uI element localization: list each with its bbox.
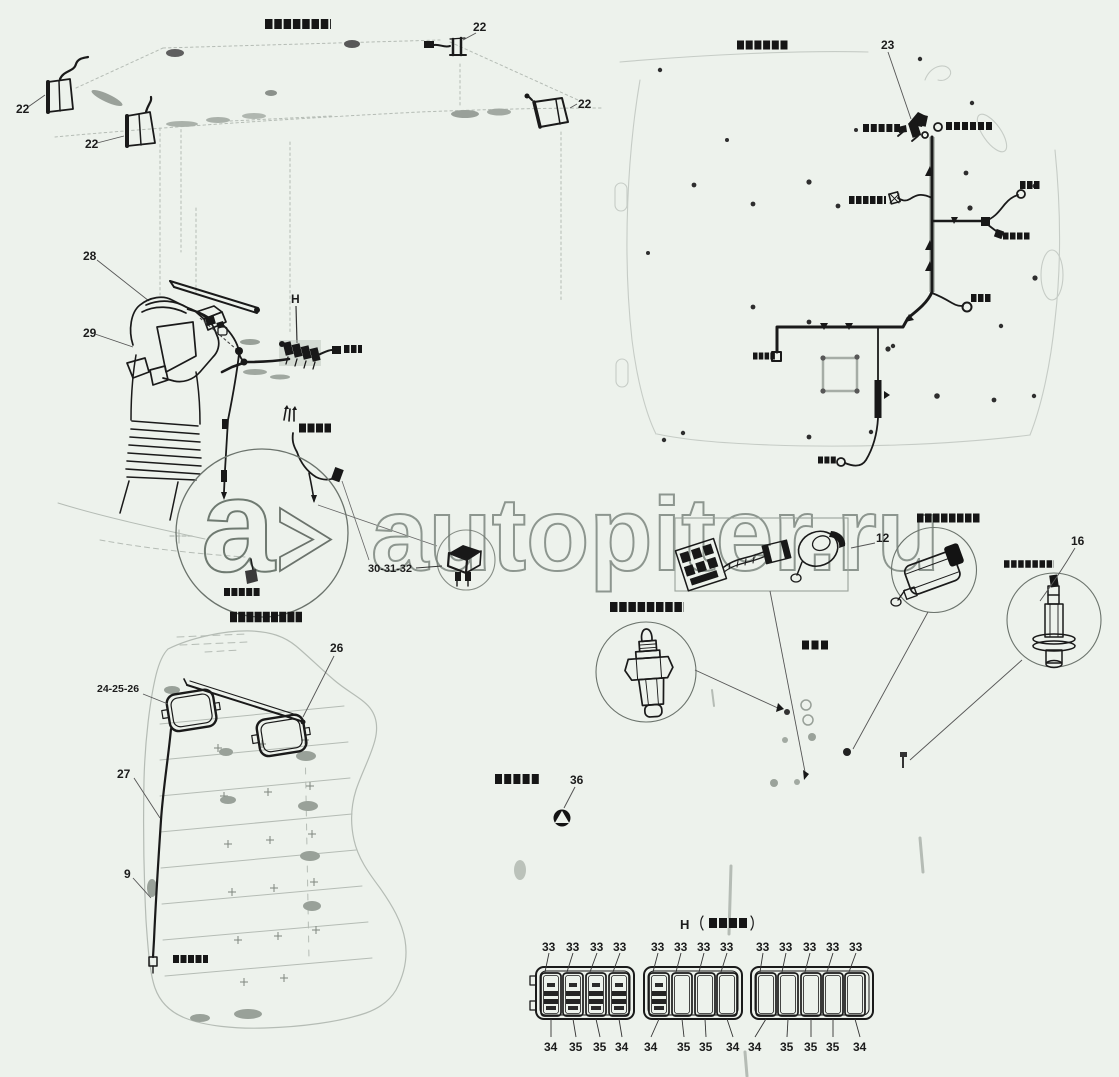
svg-text:24-25-26: 24-25-26 — [97, 683, 139, 695]
svg-text:33: 33 — [720, 940, 734, 954]
svg-text:34: 34 — [726, 1040, 740, 1054]
svg-text:33: 33 — [651, 940, 665, 954]
svg-text:34: 34 — [644, 1040, 658, 1054]
svg-text:35: 35 — [804, 1040, 818, 1054]
svg-text:23: 23 — [881, 38, 895, 52]
svg-text:36: 36 — [570, 773, 584, 787]
svg-text:34: 34 — [853, 1040, 867, 1054]
svg-text:22: 22 — [473, 20, 487, 34]
svg-text:33: 33 — [849, 940, 863, 954]
svg-text:33: 33 — [779, 940, 793, 954]
svg-text:33: 33 — [674, 940, 688, 954]
svg-text:33: 33 — [826, 940, 840, 954]
svg-text:33: 33 — [590, 940, 604, 954]
svg-text:33: 33 — [756, 940, 770, 954]
svg-text:28: 28 — [83, 249, 97, 263]
svg-text:35: 35 — [780, 1040, 794, 1054]
svg-text:33: 33 — [697, 940, 711, 954]
svg-text:35: 35 — [699, 1040, 713, 1054]
svg-text:35: 35 — [826, 1040, 840, 1054]
svg-text:34: 34 — [748, 1040, 762, 1054]
svg-text:34: 34 — [615, 1040, 629, 1054]
svg-text:27: 27 — [117, 767, 131, 781]
svg-text:9: 9 — [124, 867, 131, 881]
svg-text:22: 22 — [85, 137, 99, 151]
svg-text:26: 26 — [330, 641, 344, 655]
svg-text:33: 33 — [542, 940, 556, 954]
svg-text:33: 33 — [803, 940, 817, 954]
svg-text:35: 35 — [593, 1040, 607, 1054]
svg-text:H: H — [680, 917, 689, 932]
svg-text:a: a — [201, 452, 276, 600]
svg-text:35: 35 — [677, 1040, 691, 1054]
svg-text:22: 22 — [16, 102, 30, 116]
svg-text:22: 22 — [578, 97, 592, 111]
svg-text:H: H — [291, 292, 300, 306]
svg-text:12: 12 — [876, 531, 890, 545]
svg-text:29: 29 — [83, 326, 97, 340]
svg-text:30-31-32: 30-31-32 — [368, 563, 412, 575]
svg-text:34: 34 — [544, 1040, 558, 1054]
svg-text:35: 35 — [569, 1040, 583, 1054]
svg-text:33: 33 — [613, 940, 627, 954]
svg-text:33: 33 — [566, 940, 580, 954]
svg-text:16: 16 — [1071, 534, 1085, 548]
